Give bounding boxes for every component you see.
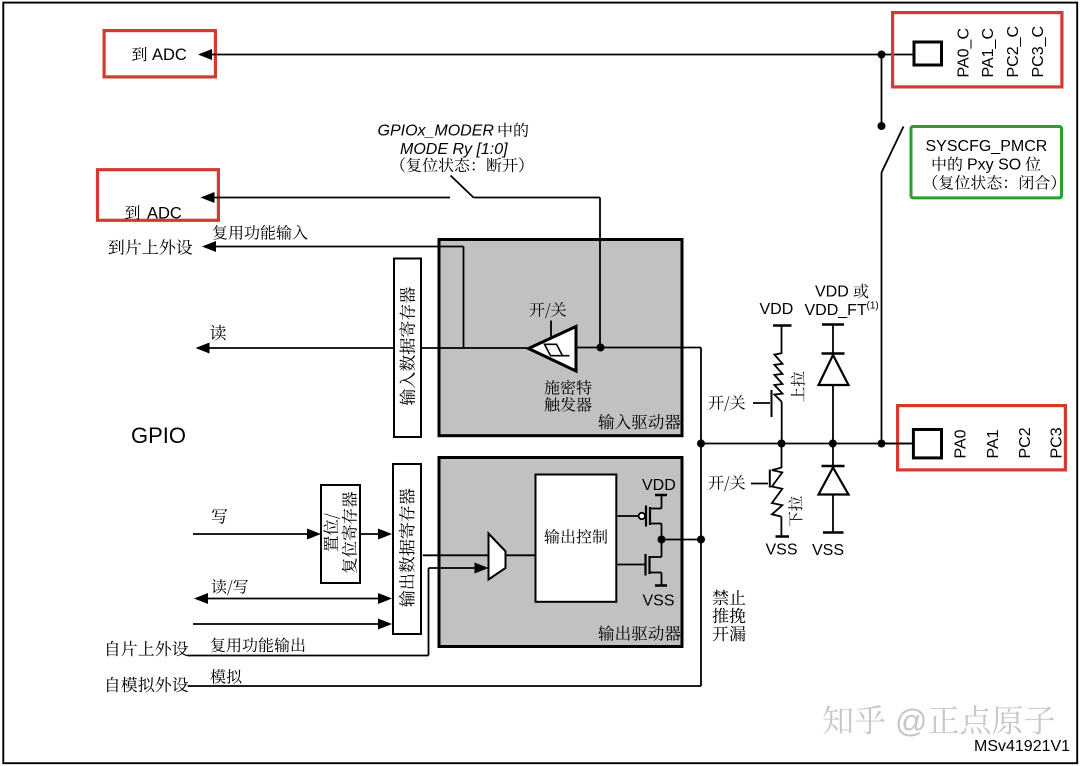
- svg-text:ADC: ADC: [152, 46, 187, 64]
- svg-text:PC3: PC3: [1049, 427, 1066, 458]
- svg-text:VDD: VDD: [815, 284, 849, 301]
- svg-text:Pxy SO: Pxy SO: [967, 157, 1021, 174]
- svg-text:VSS: VSS: [643, 593, 675, 610]
- svg-text:VDD_FT: VDD_FT: [805, 302, 867, 319]
- svg-text:PC3_C: PC3_C: [1030, 26, 1047, 78]
- svg-text:(1): (1): [867, 301, 879, 312]
- svg-text:PA1: PA1: [985, 429, 1002, 458]
- svg-text:MODE Ry [1:0]: MODE Ry [1:0]: [400, 141, 508, 158]
- svg-text:GPIOx_MODER: GPIOx_MODER: [378, 123, 495, 140]
- svg-text:ADC: ADC: [147, 204, 182, 222]
- svg-text:PA1_C: PA1_C: [980, 28, 997, 78]
- svg-text:VDD: VDD: [760, 301, 794, 318]
- svg-text:SYSCFG_PMCR: SYSCFG_PMCR: [926, 138, 1048, 155]
- svg-text:@: @: [895, 703, 927, 739]
- svg-text:PA0_C: PA0_C: [955, 28, 972, 78]
- svg-text:PA0: PA0: [952, 429, 969, 458]
- svg-text:PC2: PC2: [1017, 427, 1034, 458]
- svg-text:PC2_C: PC2_C: [1005, 26, 1022, 78]
- svg-text:VSS: VSS: [766, 542, 798, 559]
- svg-text:MSv41921V1: MSv41921V1: [974, 738, 1070, 755]
- svg-text:VSS: VSS: [812, 542, 844, 559]
- svg-text:VDD: VDD: [642, 477, 676, 494]
- svg-text:GPIO: GPIO: [131, 423, 186, 448]
